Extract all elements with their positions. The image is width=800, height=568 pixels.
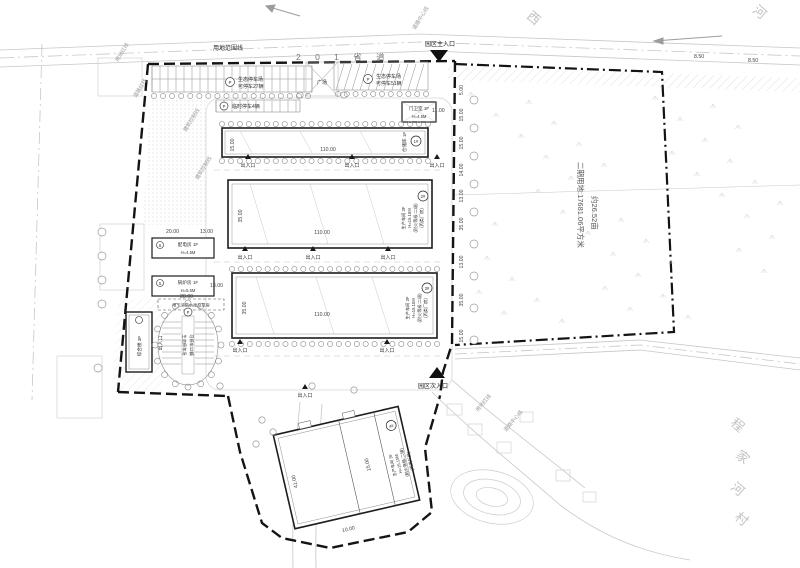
tree-icon [319,341,324,346]
dim-11: 11.00 [432,108,445,114]
grass-mark-icon [601,163,607,167]
west-char: 西 [524,8,544,28]
tree-icon [397,91,402,96]
grass-mark-icon [652,96,658,100]
tree-icon [327,341,332,346]
tree-icon [388,91,393,96]
tree-icon [363,158,368,163]
tree-icon [162,312,168,318]
tree-icon [197,93,202,98]
tree-icon [283,341,288,346]
eco-parking-p: P [229,80,232,85]
grass-mark-icon [735,125,741,129]
tree-icon [363,266,368,271]
gate-entrance-label: 出入口 [240,162,255,169]
oval-parking-count: 可停车12辆 [188,334,195,355]
grass-mark-icon [610,252,616,256]
tree-icon [354,121,359,126]
guard-house: 门卫室 1F H=4.5M [402,102,436,122]
river-char: 河 [750,2,770,22]
grass-mark-icon [643,239,649,243]
dim-col-15c: 15.00 [459,329,465,342]
tree-icon [310,266,315,271]
building-1: 1# 仓储库 1F 110.00 [222,128,428,157]
grass-mark-icon [736,248,742,252]
grass-mark-icon [660,294,666,298]
grass-mark-icon [509,277,515,281]
tree-icon [336,158,341,163]
tree-icon [229,341,234,346]
tree-icon [381,266,386,271]
grass-mark-icon [526,100,532,104]
stall-line [352,64,360,90]
eco-parking-label-right: 生态停车场 [376,73,401,80]
tree-icon [273,121,278,126]
building-3-name: 生产车间 3F [404,296,411,319]
building-4: 4# 生产车间 3F H=15.15M (耐火等级:二级) (丙类厂房) 41.… [272,400,426,544]
tree-icon [170,93,175,98]
door-arrow-icon [302,384,308,389]
building-1-number: 1# [414,139,419,144]
tree-icon [309,121,314,126]
building-2-length-dim: 110.00 [314,230,330,236]
tree-icon [219,158,224,163]
road-201-label: 2 0 1 省 道 [296,52,391,62]
grass-mark-icon [468,92,474,96]
grass-mark-icon [769,235,775,239]
dim-850-a: 8.50 [694,54,704,60]
tree-icon [282,121,287,126]
village-char-2: 家 [733,447,753,467]
dim-28: 28.00 [180,294,193,300]
grass-mark-icon [568,176,574,180]
dim-col-35b: 35.00 [459,293,465,306]
dim-col-15a: 15.00 [459,108,465,121]
tree-icon [434,341,439,346]
tree-icon [301,341,306,346]
door-arrow-icon [434,154,440,159]
grass-mark-icon [543,155,549,159]
tree-icon [228,158,233,163]
building-2-class-note: (丙类厂房) [418,208,425,228]
building-3: 3# 生产车间 3F H=15.15M (耐火等级:二级) (丙类厂房) 110… [232,273,437,338]
power-room: 6 配电房 1F H=4.5M [152,238,214,258]
tree-icon [300,158,305,163]
tree-icon [215,326,221,332]
gate-entrance-label: 出入口 [297,392,312,399]
building-2-height: H=15.15M [407,208,412,228]
tree-icon [381,158,386,163]
tree-icon [408,266,413,271]
tree-icon [363,121,368,126]
stall-line [408,64,416,90]
tree-icon [417,266,422,271]
eco-parking-count-27: 可停车27辆 [238,83,264,90]
center-line-label: 道路中心线 [410,5,431,31]
tree-icon [291,158,296,163]
tree-icon [353,91,358,96]
dim-b1-width: 15.00 [230,138,236,151]
tree-icon [354,266,359,271]
tree-icon [188,93,193,98]
tree-icon [264,158,269,163]
tree-icon [218,342,224,348]
tree-icon [390,266,395,271]
tree-icon [379,91,384,96]
tree-icon [399,158,404,163]
stall-line [416,64,424,90]
dim-col-35a: 35.00 [459,217,465,230]
dim-col-14: 14.00 [459,163,465,176]
tree-icon [336,121,341,126]
plaza-label: 广场 [317,79,327,86]
tree-icon [253,441,259,447]
tree-icon [265,341,270,346]
building-3-fire-note: (耐火等级:二级) [416,293,423,323]
grass-mark-icon [777,201,783,205]
tree-icon [336,341,341,346]
dim-b2-width: 35.00 [238,209,244,222]
village-char-4: 村 [732,509,752,529]
tree-icon [215,358,221,364]
tree-icon [274,341,279,346]
tree-icon [246,121,251,126]
tree-icon [327,121,332,126]
site-plan-drawing: 1# 仓储库 1F 110.00 2# 生产车间 3F H=15.15M (耐火… [0,0,800,568]
tree-icon [318,158,323,163]
village-char-1: 程 [728,415,748,435]
grass-mark-icon [677,117,683,121]
center-line-label-2: 道路中心线 [501,408,524,433]
tree-icon [372,266,377,271]
tree-icon [416,158,421,163]
tree-icon [390,158,395,163]
building-1-length-dim: 110.00 [320,147,336,153]
grass-mark-icon [559,319,565,323]
grass-mark-icon [518,134,524,138]
eco-parking-p-right: P [367,77,370,82]
tree-icon [372,121,377,126]
gate-entrance-label: 出入口 [380,254,395,261]
building-2-name: 生产车间 3F [400,206,407,229]
tree-icon [309,383,315,389]
grass-mark-icon [694,172,700,176]
tree-icon [345,266,350,271]
tree-icon [371,91,376,96]
boiler-room-height: H=5.5M [181,288,196,293]
building-1-name: 仓储库 1F [401,132,408,153]
tree-icon [327,266,332,271]
tree-icon [247,341,252,346]
tree-icon [265,266,270,271]
power-room-height: H=4.5M [181,250,196,255]
tree-icon [362,91,367,96]
gate-entrance-label: 出入口 [344,162,359,169]
village-char-3: 河 [728,479,748,499]
dim-col-13b: 13.00 [459,255,465,268]
boiler-room-name: 锅炉房 1F [178,279,199,286]
tree-icon [256,341,261,346]
tree-icon [237,121,242,126]
grass-mark-icon [752,180,758,184]
grass-mark-icon [761,269,767,273]
tree-icon [341,92,347,98]
tree-icon [399,266,404,271]
tree-icon [264,121,269,126]
tree-icon [238,266,243,271]
tree-icon [256,266,261,271]
building-3-length-dim: 110.00 [314,312,330,318]
building-2: 2# 生产车间 3F H=15.15M (耐火等级:二级) (丙类厂房) 110… [228,180,432,248]
building-3-number: 3# [425,286,430,291]
tree-icon [390,341,395,346]
phase2-note: 二期用地:17681.06平方米 约26.52亩 [576,162,600,248]
tree-icon [151,93,156,98]
phase2-boundary [455,64,674,345]
tree-icon [381,121,386,126]
tree-icon [217,383,223,389]
dim-col-5: 5.00 [459,85,465,95]
grass-mark-icon [685,315,691,319]
grass-mark-icon [618,218,624,222]
tree-icon [274,266,279,271]
grass-mark-icon [492,222,498,226]
underground-pump-room: 地下消防水池及泵房 [158,299,224,310]
grass-mark-icon [702,138,708,142]
guard-house-name: 门卫室 1F [409,105,430,112]
complex-building-badge [136,317,143,324]
tree-icon [300,121,305,126]
road-verge-hatch [448,66,800,92]
boiler-room: 5 锅炉房 1F H=5.5M [152,276,214,296]
tree-icon [297,92,303,98]
main-entrance-label: 园区主入口 [425,40,455,48]
grass-mark-icon [635,273,641,277]
oval-parking-p: P [187,310,190,315]
gate-entrance-label: 出入口 [232,347,247,354]
red-line-label: 用地红线 [113,41,131,63]
oval-parking-label: 生态停车场 [181,335,188,356]
tree-icon [318,121,323,126]
grass-mark-icon [493,113,499,117]
stall-line [344,64,352,90]
tree-icon [292,266,297,271]
tree-icon [301,266,306,271]
tree-icon [208,312,214,318]
gate-entrance-label: 出入口 [379,347,394,354]
tree-icon [259,417,265,423]
tree-icon [345,341,350,346]
grass-mark-icon [668,260,674,264]
tree-icon [228,121,233,126]
tree-icon [179,93,184,98]
tree-icon [345,121,350,126]
eco-parking-count-51: 可停车51辆 [376,80,402,87]
tree-icon [423,91,428,96]
tree-icon [399,121,404,126]
grass-mark-icon [669,151,675,155]
dim-850-b: 8.50 [748,58,758,64]
grass-mark-icon [744,214,750,218]
tree-icon [309,158,314,163]
guard-house-height: H=4.5M [412,114,427,119]
temp-parking-p: P [223,104,226,109]
complex-building-name: 综合楼 3F [136,336,143,357]
tree-icon [407,158,412,163]
phase2-line2: 约26.52亩 [590,196,600,230]
grass-mark-icon [627,307,633,311]
grass-mark-icon [602,286,608,290]
site-plan-canvas: 1# 仓储库 1F 110.00 2# 生产车间 3F H=15.15M (耐火… [0,0,800,568]
building-4-dim-10: 10.00 [342,525,356,534]
grass-mark-icon [710,104,716,108]
tree-icon [354,341,359,346]
grass-mark-icon [484,256,490,260]
tree-icon [255,158,260,163]
grass-mark-icon [534,298,540,302]
tree-icon [319,266,324,271]
tree-icon [291,121,296,126]
tree-icon [399,341,404,346]
tree-icon [425,266,430,271]
building-2-number: 2# [421,194,426,199]
tree-icon [162,372,168,378]
tree-icon [219,121,224,126]
dim-20: 20.00 [166,229,179,235]
site-boundary-label: 用地范围线 [213,44,243,52]
tree-icon [406,91,411,96]
temp-parking-label: 临时停车4辆 [232,103,260,110]
tree-icon [327,158,332,163]
eco-parking-label: 生态停车场 [238,76,263,83]
tree-icon [270,429,276,435]
tree-icon [206,93,211,98]
contour-lines [445,462,539,533]
tree-icon [417,341,422,346]
tree-icon [408,341,413,346]
phase2-line1: 二期用地:17681.06平方米 [576,162,586,248]
tree-icon [310,341,315,346]
tree-icon [292,341,297,346]
gate-entrance-label: 出入口 [237,254,252,261]
grass-mark-icon [501,311,507,315]
tree-icon [208,372,214,378]
gate-entrance-label: 出入口 [429,162,444,169]
dim-col-15b: 15.00 [459,136,465,149]
tree-icon [363,341,368,346]
tree-icon [425,341,430,346]
tree-icon [434,266,439,271]
gate-entrance-label: 出入口 [305,254,320,261]
dim-col-13a: 13.00 [459,189,465,202]
dim-13-a: 13.00 [200,229,213,235]
power-room-name: 配电房 1F [178,241,199,248]
tree-icon [273,158,278,163]
grass-mark-icon [727,159,733,163]
tree-icon [283,266,288,271]
tree-icon [282,158,287,163]
dim-13-b: 13.00 [210,283,223,289]
grass-mark-icon [476,290,482,294]
building-3-height: H=15.15M [411,298,416,318]
dim-b3-width: 35.00 [242,301,248,314]
tree-icon [415,91,420,96]
tree-icon [160,93,165,98]
grass-marks [468,92,783,323]
road-direction-arrows [266,5,722,44]
tree-icon [372,341,377,346]
building-2-fire-note: (耐火等级:二级) [412,203,419,233]
stall-line [336,64,344,90]
secondary-entrance-label: 园区次入口 [418,382,448,390]
tree-icon [390,121,395,126]
tree-icon [247,266,252,271]
grass-mark-icon [560,210,566,214]
building-3-class-note: (丙类厂房) [422,298,429,318]
grass-mark-icon [576,142,582,146]
grass-mark-icon [719,193,725,197]
tree-icon [255,121,260,126]
tree-icon [229,266,234,271]
tree-icon [372,158,377,163]
tree-icon [336,266,341,271]
grass-mark-icon [551,121,557,125]
red-line-label-2: 用地红线 [473,392,492,413]
